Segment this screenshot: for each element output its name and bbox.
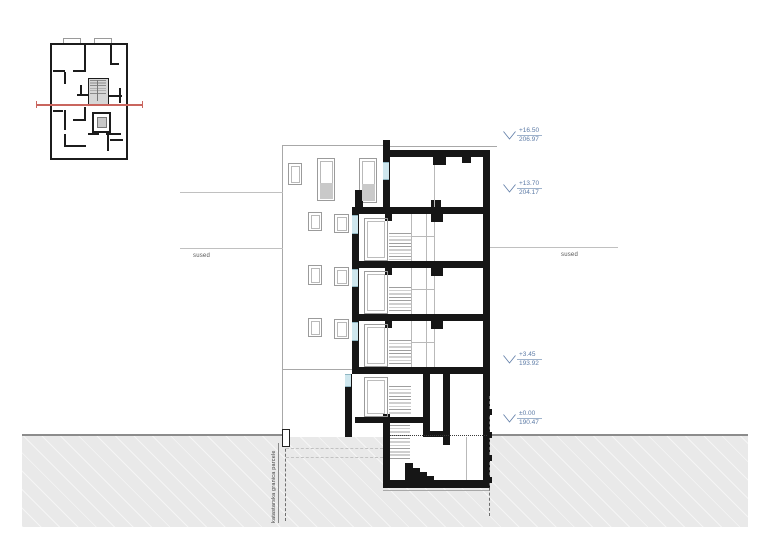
lean-concrete-line <box>383 490 490 491</box>
door-frame <box>364 271 388 314</box>
beam-nub <box>462 157 471 163</box>
section-cut-tick <box>142 101 143 108</box>
basement-wall-left <box>383 414 390 488</box>
stairwell-line <box>426 214 427 261</box>
plan-wall <box>77 94 88 96</box>
annex-face <box>283 370 352 437</box>
level-marker-icon <box>503 184 516 193</box>
excavation-line <box>286 448 383 449</box>
plan-stair-core <box>88 78 109 105</box>
stair-landing-line <box>411 289 434 290</box>
beam-nub <box>431 200 441 207</box>
beam-nub <box>431 321 443 329</box>
basement-stair-step <box>420 472 427 481</box>
beam-nub <box>433 157 446 165</box>
plan-wall <box>119 88 121 103</box>
ground-line-right <box>490 434 748 436</box>
floor-slab <box>352 367 490 374</box>
window <box>308 212 322 231</box>
partition <box>434 222 435 261</box>
boundary-tick <box>487 432 492 438</box>
level-absolute: 204.17 <box>517 189 542 197</box>
level-relative: +16.50 <box>517 127 542 136</box>
window-tall <box>317 158 335 201</box>
level-relative: ±0.00 <box>517 410 542 419</box>
basement-stair-step <box>405 463 413 481</box>
neighbor-label-left: sused <box>193 253 210 259</box>
window <box>308 265 322 285</box>
floor-plan-inset <box>0 0 160 175</box>
partition <box>434 165 435 207</box>
stairwell-line <box>426 321 427 367</box>
level-relative: +3.45 <box>517 351 542 360</box>
plan-wall <box>73 70 86 72</box>
plan-wall <box>64 72 66 84</box>
stairwell-line <box>411 268 412 314</box>
elevation-edge-top <box>282 145 385 146</box>
stairwell-line <box>411 214 412 261</box>
ground-line-left <box>22 434 285 436</box>
boundary-tick <box>487 477 492 483</box>
floor-slab <box>352 261 490 268</box>
boundary-tick <box>487 455 492 461</box>
partition <box>434 276 435 314</box>
glazing <box>345 374 351 387</box>
level-marker-icon <box>503 131 516 140</box>
glazing <box>352 322 358 341</box>
stair-treads <box>389 386 411 415</box>
plan-wall <box>110 139 123 141</box>
level-marker-icon <box>503 355 516 364</box>
floor-slab <box>352 207 490 214</box>
level-annotation: ±0.00 190.47 <box>503 410 542 426</box>
plan-wall <box>84 45 86 72</box>
beam-nub <box>431 268 443 276</box>
door-frame <box>364 324 388 367</box>
plan-wall <box>110 63 119 65</box>
window <box>288 163 302 185</box>
roof-parapet <box>383 140 390 157</box>
basement-stair-step <box>413 468 420 481</box>
stair-treads <box>390 425 410 461</box>
level-annotation: +13.70 204.17 <box>503 180 542 196</box>
plan-elevator <box>92 112 111 133</box>
glazing <box>352 215 358 234</box>
plan-wall <box>53 110 63 112</box>
annex-roof-line <box>283 369 353 370</box>
level-relative: +13.70 <box>517 180 542 189</box>
roof-edge-line <box>383 146 497 147</box>
level-annotation: +16.50 206.97 <box>503 127 542 143</box>
plan-wall <box>66 145 86 147</box>
neighbor-line <box>180 192 283 193</box>
plan-wall <box>73 119 85 121</box>
elevation-edge-left <box>282 145 283 437</box>
interior-wall <box>423 374 430 437</box>
plan-wall <box>88 133 99 135</box>
section-drawing-canvas: katastarska granica parcele sused sused … <box>0 0 770 544</box>
plan-wall <box>64 110 66 130</box>
plan-wall <box>107 135 109 151</box>
stairwell-line <box>411 321 412 367</box>
roof-slab <box>383 150 490 157</box>
interior-wall <box>423 431 450 437</box>
section-cut-tick <box>36 101 37 108</box>
neighbor-label-right: sused <box>561 252 578 258</box>
stair-landing-line <box>411 342 434 343</box>
boundary-label: katastarska granica parcele <box>271 443 279 523</box>
partition <box>434 329 435 367</box>
boundary-marker <box>282 429 290 447</box>
window <box>334 214 349 233</box>
level-annotation: +3.45 193.92 <box>503 351 542 367</box>
window <box>334 267 349 286</box>
boundary-tick <box>487 409 492 415</box>
stairwell-line <box>426 268 427 314</box>
glazing <box>383 162 389 180</box>
neighbor-line <box>180 248 283 249</box>
window <box>334 319 349 339</box>
basement-stair-step <box>427 476 434 481</box>
level-marker-icon <box>503 414 516 423</box>
level-absolute: 193.92 <box>517 360 542 368</box>
stair-treads <box>389 340 411 366</box>
level-absolute: 190.47 <box>517 419 542 427</box>
section-cut-line <box>36 104 143 106</box>
stair-treads <box>389 287 411 313</box>
stair-treads <box>389 233 411 260</box>
beam-nub <box>431 214 443 222</box>
ground-level-dotted <box>390 435 487 436</box>
window <box>308 318 322 337</box>
floor-slab <box>352 314 490 321</box>
door-frame <box>364 377 388 417</box>
level-absolute: 206.97 <box>517 136 542 144</box>
neighbor-line <box>490 247 618 248</box>
partition <box>466 437 467 480</box>
door-frame <box>364 218 388 261</box>
glazing <box>352 269 358 287</box>
plan-wall <box>110 45 112 64</box>
stair-landing-line <box>411 236 434 237</box>
basement-floor-slab <box>383 480 490 488</box>
entry-landing-slab <box>355 417 423 423</box>
excavation-line <box>286 457 383 458</box>
window-tall <box>359 158 377 203</box>
